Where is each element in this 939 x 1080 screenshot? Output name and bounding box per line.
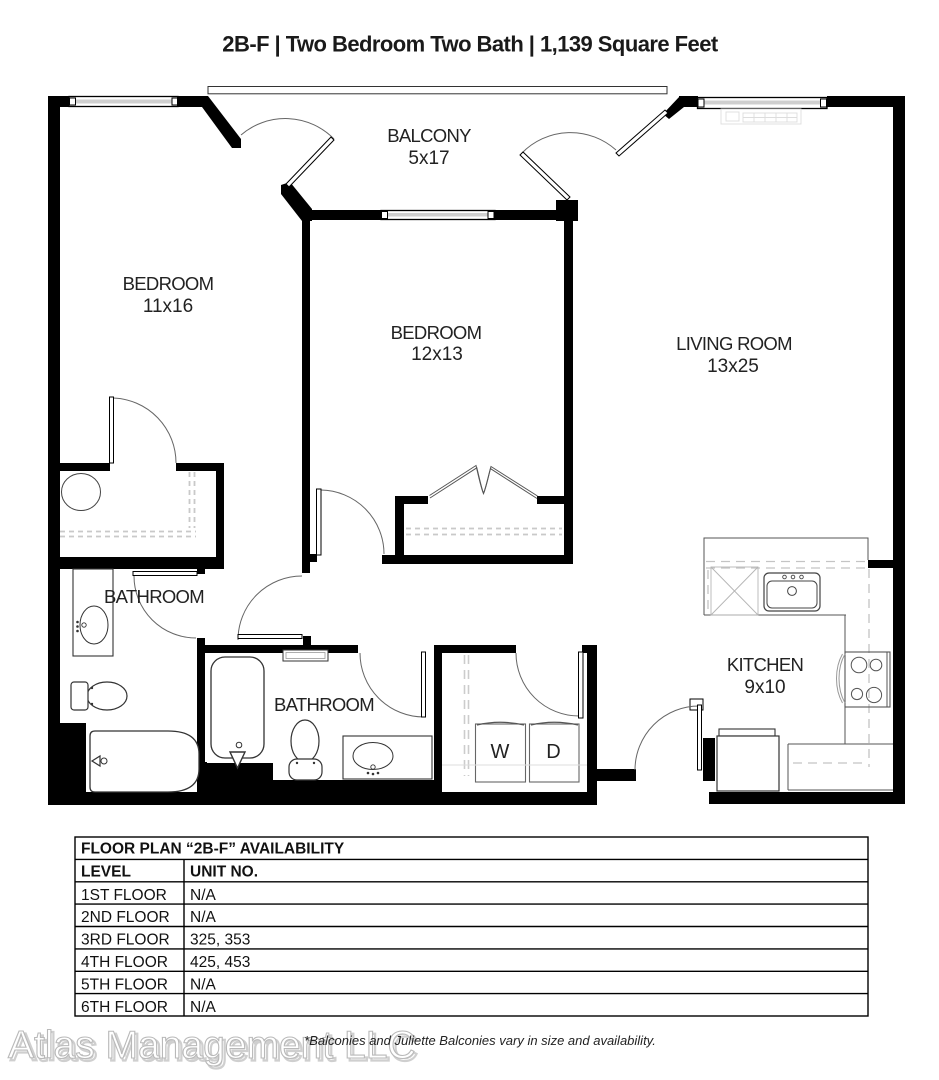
- svg-text:9x10: 9x10: [744, 677, 785, 698]
- svg-text:LIVING ROOM: LIVING ROOM: [676, 333, 792, 354]
- svg-text:2ND FLOOR: 2ND FLOOR: [81, 909, 170, 926]
- svg-text:*Balconies and Juliette Balcon: *Balconies and Juliette Balconies vary i…: [304, 1033, 656, 1048]
- svg-text:425, 453: 425, 453: [190, 954, 250, 971]
- svg-text:4TH FLOOR: 4TH FLOOR: [81, 954, 168, 971]
- svg-text:11x16: 11x16: [143, 296, 193, 317]
- svg-text:2B-F | Two Bedroom Two Bath |: 2B-F | Two Bedroom Two Bath | 1,139 Squa…: [222, 32, 719, 57]
- svg-text:BATHROOM: BATHROOM: [104, 586, 204, 607]
- svg-text:N/A: N/A: [190, 887, 217, 904]
- svg-text:BALCONY: BALCONY: [387, 125, 471, 146]
- svg-text:UNIT NO.: UNIT NO.: [190, 864, 258, 881]
- svg-text:325, 353: 325, 353: [190, 932, 250, 949]
- svg-text:W: W: [491, 741, 510, 763]
- svg-text:3RD FLOOR: 3RD FLOOR: [81, 932, 170, 949]
- svg-text:FLOOR PLAN “2B-F” AVAILABILITY: FLOOR PLAN “2B-F” AVAILABILITY: [81, 841, 345, 858]
- svg-text:LEVEL: LEVEL: [81, 864, 131, 881]
- svg-text:D: D: [546, 741, 560, 763]
- svg-text:5TH FLOOR: 5TH FLOOR: [81, 976, 168, 993]
- svg-text:BEDROOM: BEDROOM: [391, 322, 482, 343]
- svg-text:N/A: N/A: [190, 976, 217, 993]
- svg-text:BATHROOM: BATHROOM: [274, 694, 374, 715]
- svg-text:N/A: N/A: [190, 909, 217, 926]
- svg-text:13x25: 13x25: [707, 356, 759, 377]
- svg-text:5x17: 5x17: [408, 148, 449, 169]
- svg-text:KITCHEN: KITCHEN: [727, 654, 803, 675]
- svg-text:6TH FLOOR: 6TH FLOOR: [81, 999, 168, 1016]
- svg-text:BEDROOM: BEDROOM: [123, 273, 214, 294]
- svg-text:1ST FLOOR: 1ST FLOOR: [81, 887, 167, 904]
- svg-text:N/A: N/A: [190, 999, 217, 1016]
- svg-text:12x13: 12x13: [411, 344, 463, 365]
